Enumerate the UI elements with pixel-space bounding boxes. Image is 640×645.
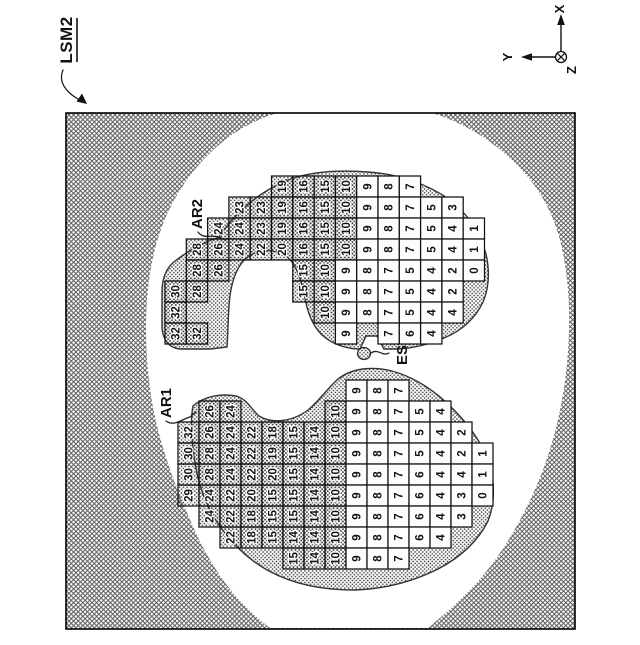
grid-cell-value: 15 bbox=[289, 447, 301, 460]
grid-cell-value: 10 bbox=[331, 531, 343, 544]
grid-cell-value: 10 bbox=[320, 306, 332, 319]
grid-cell-value: 9 bbox=[352, 471, 364, 477]
grid-cell-value: 7 bbox=[384, 267, 396, 273]
grid-cell-value: 14 bbox=[310, 426, 322, 439]
grid-cell-value: 24 bbox=[235, 243, 247, 256]
grid-cell-value: 6 bbox=[415, 534, 427, 540]
grid-cell-value: 1 bbox=[478, 450, 490, 457]
grid-cell-value: 24 bbox=[226, 468, 238, 481]
grid-cell-value: 4 bbox=[457, 471, 469, 478]
label-ar1: AR1 bbox=[158, 388, 175, 418]
patent-figure: 1916151098723231916151098753242423191615… bbox=[0, 0, 640, 640]
grid-cell-value: 18 bbox=[268, 426, 280, 439]
grid-cell-value: 15 bbox=[298, 264, 310, 277]
grid-cell-value: 20 bbox=[277, 243, 289, 256]
grid-cell-value: 22 bbox=[247, 447, 259, 460]
grid-cell-value: 15 bbox=[320, 201, 332, 214]
grid-cell-value: 7 bbox=[394, 492, 406, 498]
grid-cell-value: 5 bbox=[426, 246, 438, 253]
grid-cell-value: 4 bbox=[448, 246, 460, 253]
grid-cell-value: 9 bbox=[362, 204, 374, 210]
grid-cell-value: 3 bbox=[457, 513, 469, 519]
grid-cell-value: 22 bbox=[226, 510, 238, 523]
grid-cell-value: 28 bbox=[192, 243, 204, 256]
grid-cell-value: 10 bbox=[331, 489, 343, 502]
grid-cell-value: 4 bbox=[436, 408, 448, 415]
grid-cell-value: 15 bbox=[289, 426, 301, 439]
grid-cell-value: 5 bbox=[405, 309, 417, 316]
grid-cell-value: 9 bbox=[341, 309, 353, 315]
grid-cell-value: 24 bbox=[235, 222, 247, 235]
grid-cell-value: 9 bbox=[341, 267, 353, 273]
grid-cell-value: 5 bbox=[415, 450, 427, 457]
grid-cell-value: 6 bbox=[415, 492, 427, 498]
grid-cell-value: 7 bbox=[394, 429, 406, 435]
grid-cell-value: 8 bbox=[384, 246, 396, 253]
grid-cell-value: 24 bbox=[205, 510, 217, 523]
grid-cell-value: 24 bbox=[205, 489, 217, 502]
grid-cell-value: 15 bbox=[268, 489, 280, 502]
grid-cell-value: 8 bbox=[373, 492, 385, 499]
grid-cell-value: 9 bbox=[362, 246, 374, 252]
figure-canvas: 1916151098723231916151098753242423191615… bbox=[0, 0, 640, 640]
grid-cell-value: 20 bbox=[247, 489, 259, 502]
grid-cell-value: 15 bbox=[289, 552, 301, 565]
axis-z-label: Z bbox=[564, 66, 579, 74]
grid-cell-value: 8 bbox=[384, 225, 396, 232]
grid-cell-value: 2 bbox=[448, 267, 460, 273]
grid-cell-value: 24 bbox=[226, 405, 238, 418]
grid-cell-value: 6 bbox=[415, 513, 427, 519]
grid-cell-value: 23 bbox=[256, 222, 268, 235]
grid-cell-value: 22 bbox=[247, 426, 259, 439]
grid-cell-value: 8 bbox=[373, 471, 385, 478]
grid-cell-value: 4 bbox=[436, 471, 448, 478]
grid-cell-value: 8 bbox=[362, 288, 374, 295]
grid-cell-value: 3 bbox=[448, 204, 460, 210]
grid-cell-value: 8 bbox=[373, 387, 385, 394]
grid-cell-value: 0 bbox=[478, 492, 490, 498]
axis-y-label: Y bbox=[500, 52, 515, 61]
grid-cell-value: 7 bbox=[405, 246, 417, 252]
grid-cell-value: 7 bbox=[405, 204, 417, 210]
grid-cell-value: 9 bbox=[352, 492, 364, 498]
grid-cell-value: 4 bbox=[436, 513, 448, 520]
grid-cell-value: 3 bbox=[457, 492, 469, 498]
grid-cell-value: 9 bbox=[352, 555, 364, 561]
grid-cell-value: 32 bbox=[184, 426, 196, 439]
grid-cell-value: 16 bbox=[298, 180, 310, 193]
grid-cell-value: 14 bbox=[310, 447, 322, 460]
grid-cell-value: 9 bbox=[341, 330, 353, 336]
grid-cell-value: 4 bbox=[436, 534, 448, 541]
grid-cell-value: 16 bbox=[298, 222, 310, 235]
grid-cell-value: 7 bbox=[394, 555, 406, 561]
grid-cell-value: 2 bbox=[457, 450, 469, 456]
grid-cell-value: 15 bbox=[289, 489, 301, 502]
grid-cell-value: 30 bbox=[184, 468, 196, 481]
grid-cell-value: 9 bbox=[352, 513, 364, 519]
grid-cell-value: 32 bbox=[192, 327, 204, 340]
grid-cell-value: 10 bbox=[341, 243, 353, 256]
grid-cell-value: 1 bbox=[469, 246, 481, 253]
grid-cell-value: 7 bbox=[394, 534, 406, 540]
grid-cell-value: 4 bbox=[436, 429, 448, 436]
grid-cell-value: 15 bbox=[320, 243, 332, 256]
grid-cell-value: 7 bbox=[394, 450, 406, 456]
grid-cell-value: 19 bbox=[277, 180, 289, 193]
grid-cell-value: 10 bbox=[331, 468, 343, 481]
grid-cell-value: 26 bbox=[213, 243, 225, 256]
label-ar2: AR2 bbox=[189, 199, 206, 229]
grid-cell-value: 20 bbox=[268, 468, 280, 481]
grid-cell-value: 9 bbox=[362, 225, 374, 231]
grid-cell-value: 8 bbox=[373, 555, 385, 562]
grid-cell-value: 28 bbox=[192, 285, 204, 298]
grid-cell-value: 24 bbox=[226, 447, 238, 460]
grid-cell-value: 8 bbox=[362, 309, 374, 316]
grid-cell-value: 9 bbox=[341, 288, 353, 294]
grid-cell-value: 10 bbox=[341, 201, 353, 214]
grid-cell-value: 14 bbox=[310, 468, 322, 481]
grid-cell-value: 15 bbox=[289, 468, 301, 481]
grid-cell-value: 8 bbox=[384, 204, 396, 211]
grid-cell-value: 32 bbox=[171, 327, 183, 340]
grid-cell-value: 10 bbox=[331, 426, 343, 439]
grid-cell-value: 4 bbox=[426, 288, 438, 295]
grid-cell-value: 8 bbox=[373, 429, 385, 436]
grid-cell-value: 6 bbox=[405, 330, 417, 336]
grid-cell-value: 24 bbox=[213, 222, 225, 235]
grid-cell-value: 4 bbox=[426, 267, 438, 274]
grid-cell-value: 9 bbox=[362, 183, 374, 189]
es-structure bbox=[358, 348, 371, 360]
grid-cell-value: 8 bbox=[373, 534, 385, 541]
grid-cell-value: 5 bbox=[415, 408, 427, 415]
grid-cell-value: 15 bbox=[268, 510, 280, 523]
grid-cell-value: 30 bbox=[184, 447, 196, 460]
grid-cell-value: 8 bbox=[384, 183, 396, 190]
grid-cell-value: 28 bbox=[205, 468, 217, 481]
grid-cell-value: 15 bbox=[268, 531, 280, 544]
grid-cell-value: 7 bbox=[384, 288, 396, 294]
grid-cell-value: 26 bbox=[205, 405, 217, 418]
grid-cell-value: 18 bbox=[247, 531, 259, 544]
grid-cell-value: 4 bbox=[426, 330, 438, 337]
grid-cell-value: 32 bbox=[171, 306, 183, 319]
figure-label-leader bbox=[61, 70, 78, 99]
grid-cell-value: 10 bbox=[331, 405, 343, 418]
grid-cell-value: 7 bbox=[405, 183, 417, 189]
grid-cell-value: 19 bbox=[268, 447, 280, 460]
grid-cell-value: 23 bbox=[235, 201, 247, 214]
grid-cell-value: 22 bbox=[226, 489, 238, 502]
grid-cell-value: 22 bbox=[247, 468, 259, 481]
grid-cell-value: 30 bbox=[171, 285, 183, 298]
grid-cell-value: 7 bbox=[394, 471, 406, 477]
grid-cell-value: 29 bbox=[184, 489, 196, 502]
grid-cell-value: 28 bbox=[205, 447, 217, 460]
grid-cell-value: 8 bbox=[373, 450, 385, 457]
grid-cell-value: 14 bbox=[310, 531, 322, 544]
grid-cell-value: 14 bbox=[310, 510, 322, 523]
grid-cell-value: 4 bbox=[436, 450, 448, 457]
grid-cell-value: 22 bbox=[226, 531, 238, 544]
grid-cell-value: 18 bbox=[247, 510, 259, 523]
grid-cell-value: 8 bbox=[362, 267, 374, 274]
grid-cell-value: 9 bbox=[352, 534, 364, 540]
grid-cell-value: 15 bbox=[298, 285, 310, 298]
grid-cell-value: 14 bbox=[310, 489, 322, 502]
grid-cell-value: 9 bbox=[352, 450, 364, 456]
grid-cell-value: 7 bbox=[384, 309, 396, 315]
grid-cell-value: 10 bbox=[341, 180, 353, 193]
grid-cell-value: 2 bbox=[448, 288, 460, 294]
grid-cell-value: 15 bbox=[289, 510, 301, 523]
grid-cell-value: 7 bbox=[394, 513, 406, 519]
grid-cell-value: 2 bbox=[457, 429, 469, 435]
grid-cell-value: 16 bbox=[298, 243, 310, 256]
grid-cell-value: 5 bbox=[405, 288, 417, 295]
grid-cell-value: 4 bbox=[426, 309, 438, 316]
grid-cell-value: 22 bbox=[256, 243, 268, 256]
grid-cell-value: 7 bbox=[394, 387, 406, 393]
figure-label: LSM2 bbox=[57, 16, 76, 63]
grid-cell-value: 10 bbox=[320, 264, 332, 277]
grid-cell-value: 0 bbox=[469, 267, 481, 273]
grid-cell-value: 8 bbox=[373, 408, 385, 415]
grid-cell-value: 6 bbox=[415, 471, 427, 477]
grid-cell-value: 10 bbox=[331, 552, 343, 565]
grid-cell-value: 5 bbox=[426, 204, 438, 211]
axis-y-arrowhead bbox=[521, 53, 532, 61]
grid-cell-value: 10 bbox=[331, 510, 343, 523]
grid-cell-value: 19 bbox=[277, 222, 289, 235]
grid-cell-value: 7 bbox=[405, 225, 417, 231]
grid-cell-value: 10 bbox=[331, 447, 343, 460]
grid-cell-value: 1 bbox=[469, 225, 481, 232]
grid-cell-value: 14 bbox=[310, 552, 322, 565]
grid-cell-value: 9 bbox=[352, 408, 364, 414]
axis-x-arrowhead bbox=[557, 14, 565, 25]
grid-cell-value: 16 bbox=[298, 201, 310, 214]
grid-cell-value: 9 bbox=[352, 387, 364, 393]
grid-cell-value: 5 bbox=[405, 267, 417, 274]
grid-cell-value: 24 bbox=[226, 426, 238, 439]
grid-cell-value: 8 bbox=[373, 513, 385, 520]
grid-cell-value: 5 bbox=[426, 225, 438, 232]
grid-cell-value: 1 bbox=[478, 471, 490, 478]
grid-cell-value: 5 bbox=[415, 429, 427, 436]
grid-cell-value: 15 bbox=[320, 180, 332, 193]
grid-cell-value: 7 bbox=[394, 408, 406, 414]
label-es: ES bbox=[394, 345, 411, 365]
grid-cell-value: 10 bbox=[320, 285, 332, 298]
axis-x-label: X bbox=[552, 4, 567, 13]
grid-cell-value: 26 bbox=[213, 264, 225, 277]
grid-cell-value: 28 bbox=[192, 264, 204, 277]
grid-cell-value: 15 bbox=[320, 222, 332, 235]
grid-cell-value: 23 bbox=[256, 201, 268, 214]
grid-cell-value: 26 bbox=[205, 426, 217, 439]
grid-cell-value: 4 bbox=[436, 492, 448, 499]
grid-cell-value: 14 bbox=[289, 531, 301, 544]
grid-cell-value: 7 bbox=[384, 330, 396, 336]
grid-cell-value: 9 bbox=[352, 429, 364, 435]
grid-cell-value: 10 bbox=[341, 222, 353, 235]
grid-cell-value: 19 bbox=[277, 201, 289, 214]
grid-cell-value: 4 bbox=[448, 309, 460, 316]
grid-cell-value: 4 bbox=[448, 225, 460, 232]
axis-indicator: X Y Z bbox=[500, 4, 579, 74]
figure-label-group: LSM2 bbox=[57, 16, 77, 63]
